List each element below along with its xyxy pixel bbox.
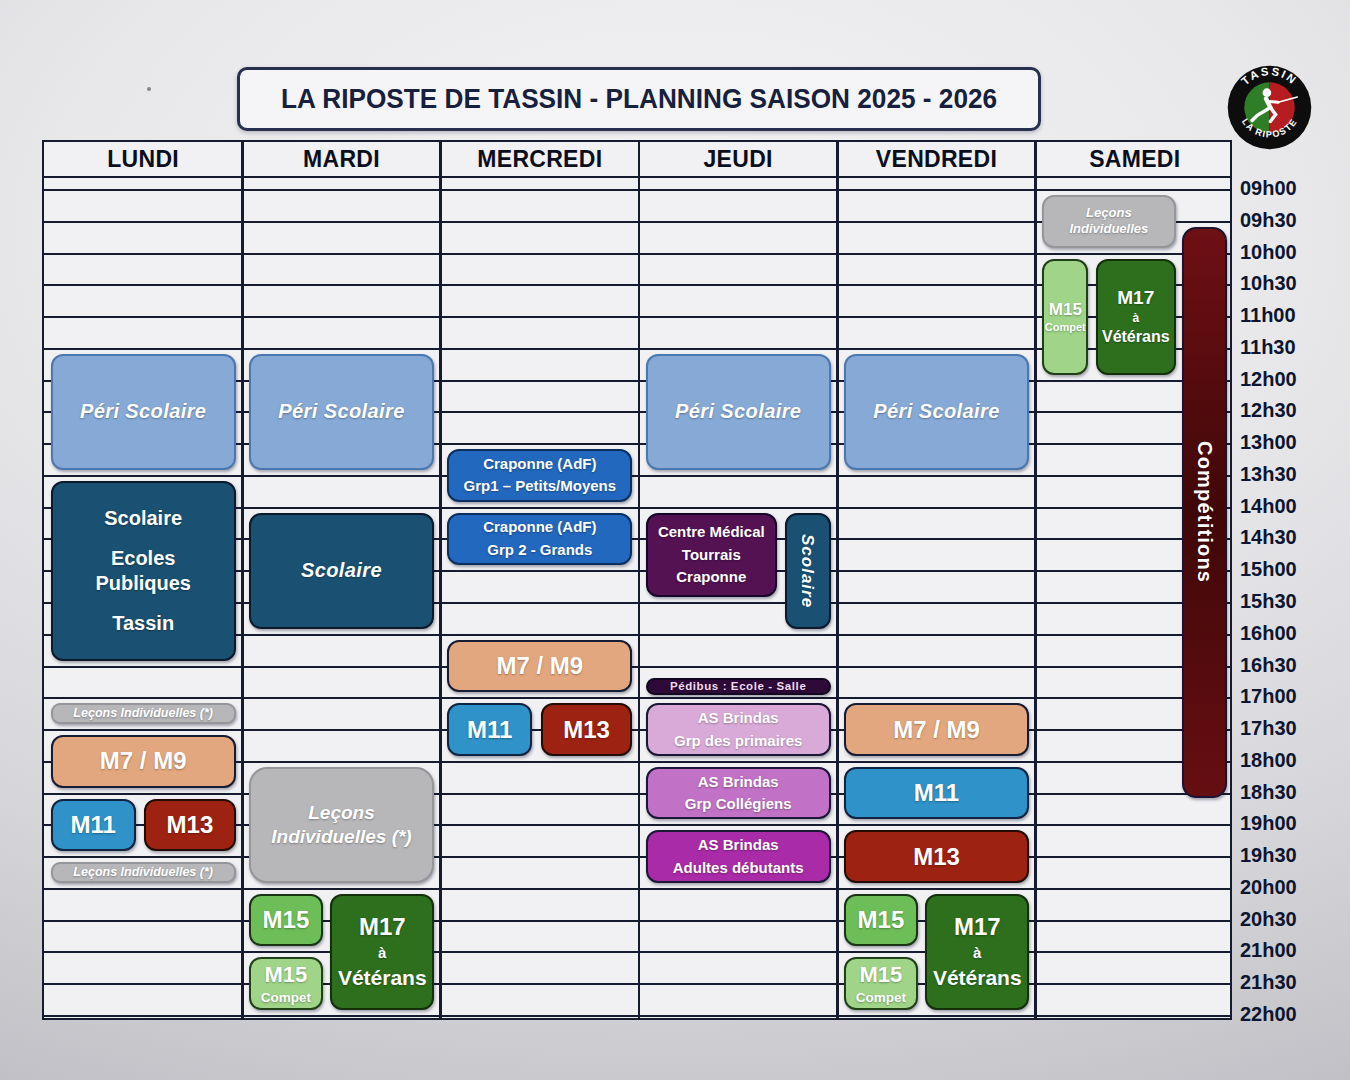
event-label: M7 / M9 [100,746,187,776]
event-peri-scolaire-mardi: Péri Scolaire [249,354,434,470]
event-label: Centre Médical [658,521,765,544]
event-label: à [973,944,981,963]
event-label: M17 [1117,286,1154,310]
event-label: M7 / M9 [496,651,583,681]
time-label-13h00: 13h00 [1240,430,1350,454]
event-scolaire-mardi: Scolaire [249,513,434,629]
event-peri-scolaire-vendredi: Péri Scolaire [844,354,1029,470]
event-label: M7 / M9 [893,715,980,745]
title-box: LA RIPOSTE DE TASSIN - PLANNING SAISON 2… [237,67,1041,131]
time-label-09h30: 09h30 [1240,208,1350,232]
event-label: M15 [858,905,905,935]
event-m17-a-veterans-vendredi: M17àVétérans [925,894,1029,1010]
time-label-12h00: 12h00 [1240,367,1350,391]
event-label: à [378,944,386,963]
time-label-20h00: 20h00 [1240,875,1350,899]
time-label-10h30: 10h30 [1240,271,1350,295]
time-label-09h00: 09h00 [1240,176,1350,200]
event-label: Péri Scolaire [80,399,206,424]
time-label-11h00: 11h00 [1240,303,1350,327]
grid-vline [241,142,244,1018]
event-pedibus-ecole-salle-jeudi: Pédibus : Ecole - Salle [646,678,831,696]
event-label: Grp des primaires [674,730,802,753]
event-label: AS Brindas [698,707,779,730]
event-m13-lundi: M13 [144,799,236,852]
time-label-21h30: 21h30 [1240,970,1350,994]
day-header-jeudi: JEUDI [639,142,837,176]
event-as-brindas-adultes-debutants-jeudi: AS BrindasAdultes débutants [646,830,831,883]
event-m17-a-veterans-samedi: M17àVétérans [1096,259,1176,375]
time-label-15h30: 15h30 [1240,589,1350,613]
event-label: Vétérans [338,965,427,991]
event-label: M15 [859,961,902,989]
event-label: M15 [264,961,307,989]
event-label: Grp Collégiens [685,793,792,816]
event-label: Compet [856,990,906,1007]
event-label: Vétérans [1102,327,1170,347]
event-label: M17 [359,912,406,942]
event-label: Scolaire [104,506,182,531]
event-craponne-adf-grp-2-grands-mercredi: Craponne (AdF)Grp 2 - Grands [447,513,632,566]
event-label: Péri Scolaire [278,399,404,424]
event-as-brindas-grp-collegiens-jeudi: AS BrindasGrp Collégiens [646,767,831,820]
event-label: M15 [263,905,310,935]
event-label: M11 [467,715,512,745]
event-lecons-individuelles-samedi: LeçonsIndividuelles [1042,195,1175,248]
event-label: Grp 2 - Grands [487,539,592,562]
time-label-13h30: 13h30 [1240,462,1350,486]
time-label-12h30: 12h30 [1240,398,1350,422]
grid-vline [439,142,442,1018]
event-scolaire-jeudi: Scolaire [785,513,831,629]
event-label: Ecoles [111,546,175,571]
event-m11-lundi: M11 [51,799,136,852]
event-label: Scolaire [797,534,818,608]
event-label: Publiques [95,571,191,596]
event-m15-compet-samedi: M15Compet [1042,259,1088,375]
event-scolaire-ecoles-publiques-tassin-lundi: ScolaireEcolesPubliquesTassin [51,481,236,661]
event-peri-scolaire-lundi: Péri Scolaire [51,354,236,470]
event-label: Compet [261,990,311,1007]
event-label: Adultes débutants [673,857,804,880]
event-label: M11 [70,810,115,840]
event-lecons-individuelles-lundi: Leçons Individuelles (*) [51,862,236,883]
event-label: M15 [1049,299,1082,320]
day-header-samedi: SAMEDI [1036,142,1234,176]
event-m11-vendredi: M11 [844,767,1029,820]
event-label: AS Brindas [698,771,779,794]
time-label-17h00: 17h00 [1240,684,1350,708]
time-label-11h30: 11h30 [1240,335,1350,359]
event-lecons-individuelles-lundi: Leçons Individuelles (*) [51,703,236,724]
event-m7-m9-lundi: M7 / M9 [51,735,236,788]
time-label-14h30: 14h30 [1240,525,1350,549]
event-craponne-adf-grp1-petits-moyens-mercredi: Craponne (AdF)Grp1 – Petits/Moyens [447,449,632,502]
event-label: Compet [1045,321,1086,335]
time-label-10h00: 10h00 [1240,240,1350,264]
event-label: Scolaire [301,558,382,583]
event-m15-compet-vendredi: M15Compet [844,957,918,1010]
event-label: M13 [167,810,214,840]
grid-vline [638,142,641,1018]
event-as-brindas-grp-des-primaires-jeudi: AS BrindasGrp des primaires [646,703,831,756]
event-label: Craponne (AdF) [483,453,596,476]
event-label: Leçons Individuelles (*) [73,865,213,881]
event-m17-a-veterans-mardi: M17àVétérans [330,894,434,1010]
planning-grid: LUNDIMARDIMERCREDIJEUDIVENDREDISAMEDIPér… [42,140,1232,1020]
time-label-21h00: 21h00 [1240,938,1350,962]
event-label: M11 [914,778,959,808]
event-label: AS Brindas [698,834,779,857]
event-label: Leçons [308,801,375,825]
time-label-18h00: 18h00 [1240,748,1350,772]
event-label: Craponne [676,566,746,589]
time-label-16h30: 16h30 [1240,653,1350,677]
event-label: Pédibus : Ecole - Salle [670,679,807,693]
event-label: Leçons [1086,205,1132,221]
event-centre-medical-tourrais-craponne-jeudi: Centre MédicalTourraisCraponne [646,513,778,597]
event-label: Vétérans [933,965,1022,991]
time-label-17h30: 17h30 [1240,716,1350,740]
event-m15-compet-mardi: M15Compet [249,957,323,1010]
grid-vline [1034,142,1037,1018]
day-header-mercredi: MERCREDI [441,142,639,176]
event-label: M13 [563,715,610,745]
event-label: Grp1 – Petits/Moyens [464,475,617,498]
time-label-22h00: 22h00 [1240,1002,1350,1026]
event-label: à [1132,311,1139,326]
stray-dot [147,87,151,91]
event-label: Compétitions [1192,441,1217,583]
time-label-20h30: 20h30 [1240,907,1350,931]
event-label: Tourrais [682,544,741,567]
day-header-lundi: LUNDI [44,142,242,176]
event-m7-m9-mercredi: M7 / M9 [447,640,632,693]
time-label-15h00: 15h00 [1240,557,1350,581]
event-m15-mardi: M15 [249,894,323,947]
club-logo: TASSIN LA RIPOSTE [1226,64,1313,151]
day-header-vendredi: VENDREDI [837,142,1035,176]
time-label-19h30: 19h30 [1240,843,1350,867]
event-label: Individuelles (*) [271,825,411,849]
event-m11-mercredi: M11 [447,703,532,756]
time-label-19h00: 19h00 [1240,811,1350,835]
event-m15-vendredi: M15 [844,894,918,947]
event-label: Leçons Individuelles (*) [73,706,213,722]
event-label: Péri Scolaire [675,399,801,424]
day-header-mardi: MARDI [242,142,440,176]
time-label-14h00: 14h00 [1240,494,1350,518]
time-label-18h30: 18h30 [1240,780,1350,804]
page-title: LA RIPOSTE DE TASSIN - PLANNING SAISON 2… [281,84,997,115]
event-competitions-samedi: Compétitions [1182,227,1227,798]
event-lecons-individuelles-mardi: LeçonsIndividuelles (*) [249,767,434,883]
event-label: Péri Scolaire [873,399,999,424]
event-label: M17 [954,912,1001,942]
event-m7-m9-vendredi: M7 / M9 [844,703,1029,756]
event-m13-mercredi: M13 [541,703,633,756]
event-label: Tassin [112,611,174,636]
event-label: Craponne (AdF) [483,516,596,539]
event-label: M13 [913,842,960,872]
grid-vline [836,142,839,1018]
event-peri-scolaire-jeudi: Péri Scolaire [646,354,831,470]
event-m13-vendredi: M13 [844,830,1029,883]
event-label: Individuelles [1070,221,1149,237]
time-label-16h00: 16h00 [1240,621,1350,645]
